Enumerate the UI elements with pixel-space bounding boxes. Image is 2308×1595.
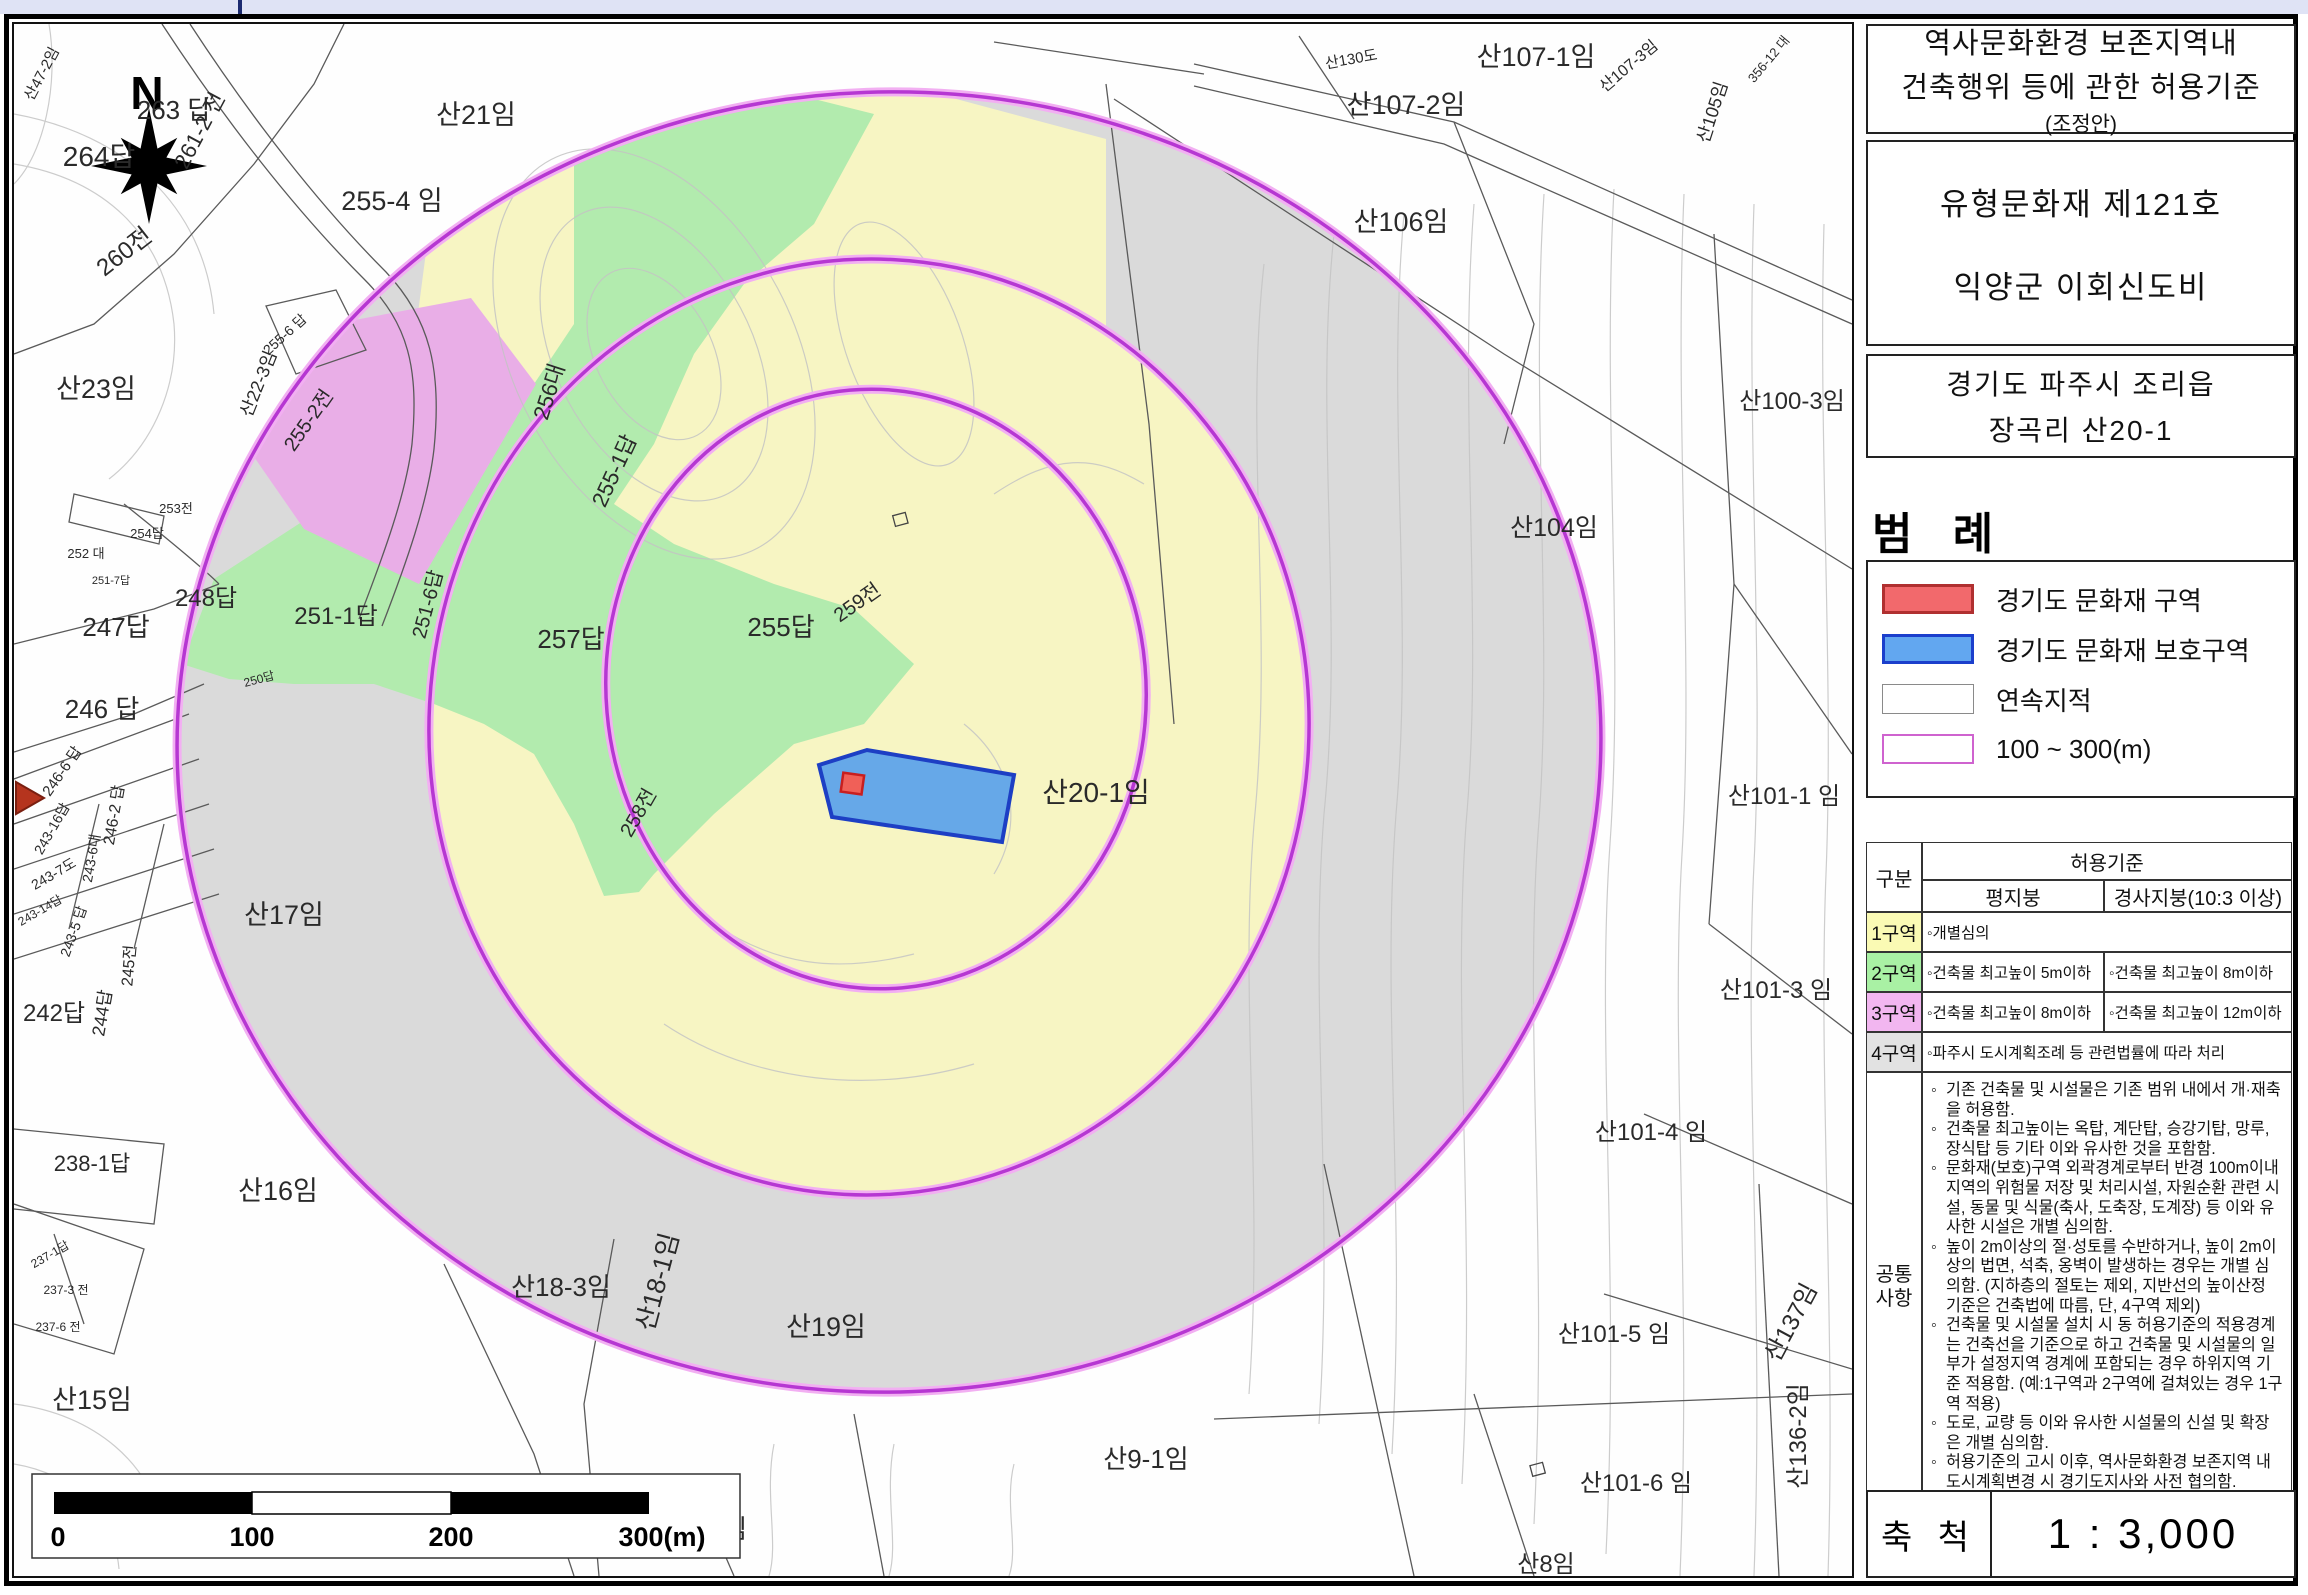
- parcel-label: 264답: [63, 141, 135, 172]
- parcel-label: 243-6대: [79, 833, 103, 884]
- heritage-box: 유형문화재 제121호 익양군 이회신도비: [1866, 140, 2296, 346]
- address-line2: 장곡리 산20-1: [1868, 409, 2294, 449]
- zone1-header: 1구역: [1866, 912, 1922, 952]
- parcel-label: 산101-3 임: [1720, 977, 1832, 1004]
- legend-box: 경기도 문화재 구역 경기도 문화재 보호구역 연속지적 100 ~ 300(m…: [1866, 560, 2296, 798]
- parcel-label: 산22-3임: [236, 348, 280, 420]
- title-box: 역사문화환경 보존지역내 건축행위 등에 관한 허용기준 (조정안): [1866, 24, 2296, 134]
- parcel-label: 산101-1 임: [1728, 783, 1840, 810]
- top-strip-divider: [238, 0, 242, 14]
- parcel-label: 257답: [537, 624, 604, 654]
- parcel-label: 산15임: [52, 1385, 132, 1415]
- parcel-label: 산17임: [244, 900, 324, 930]
- parcel-label: 246-6 답: [39, 743, 85, 799]
- parcel-label: 산106임: [1354, 207, 1449, 237]
- parcel-label: 산101-4 임: [1595, 1119, 1707, 1146]
- parcel-label: 244답: [88, 988, 116, 1037]
- parcel-label: 237-3 전: [43, 1283, 88, 1297]
- parcel-label: 산47-2임: [21, 44, 63, 103]
- doc-title-line1: 역사문화환경 보존지역내: [1868, 20, 2294, 62]
- legend-label: 연속지적: [1996, 681, 2092, 718]
- zone4-header: 4구역: [1866, 1032, 1922, 1072]
- parcel-label: 243-16답: [31, 800, 73, 857]
- map-sheet: N 263 답264답산47-2임260전261-2 전255-4 임산21임2…: [0, 0, 2308, 1595]
- parcel-label: 255-4 임: [341, 186, 442, 216]
- parcel-label: 246-2 답: [100, 784, 128, 847]
- scale-tick-300: 300(m): [618, 1522, 705, 1552]
- heritage-site-marker: [841, 773, 864, 795]
- zone3-flat-standard: ◦건축물 최고높이 8m이하: [1922, 992, 2104, 1032]
- parcel-label: 산19임: [786, 1312, 866, 1342]
- heritage-name: 익양군 이회신도비: [1868, 262, 2294, 307]
- parcel-label: 247답: [82, 612, 149, 642]
- common-provision-item: ◦문화재(보호)구역 외곽경계로부터 반경 100m이내 지역의 위험물 저장 …: [1931, 1159, 2283, 1237]
- legend-item-heritage-zone: 경기도 문화재 구역: [1882, 574, 2294, 624]
- scale-tick-200: 200: [428, 1522, 473, 1552]
- parcel-label: 산137임: [1760, 1279, 1823, 1366]
- heritage-designation: 유형문화재 제121호: [1868, 179, 2294, 224]
- common-header-line1: 공통: [1876, 1263, 1913, 1287]
- parcel-label: 산16임: [238, 1176, 318, 1206]
- parcel-label: 260전: [92, 222, 158, 282]
- common-provision-item: ◦건축물 및 시설물 설치 시 동 허용기준의 적용경계는 건축선을 기준으로 …: [1931, 1316, 2283, 1414]
- parcel-label: 산21임: [436, 100, 516, 130]
- common-provision-item: ◦건축물 최고높이는 옥탑, 계단탑, 승강기탑, 망루, 장식탑 등 기타 이…: [1931, 1120, 2283, 1159]
- parcel-label: 산105임: [1693, 79, 1732, 145]
- legend-swatch-white: [1882, 684, 1974, 714]
- parcel-label: 248답: [175, 585, 237, 612]
- parcel-label: 237-6 전: [35, 1320, 80, 1334]
- parcel-label: 산18-3임: [511, 1272, 611, 1302]
- parcel-label: 356-12 대: [1745, 33, 1793, 86]
- parcel-label: 산136-2임: [1785, 1383, 1812, 1489]
- parcel-label: 산107-2임: [1347, 90, 1466, 120]
- zone2-flat-standard: ◦건축물 최고높이 5m이하: [1922, 952, 2104, 992]
- parcel-label: 242답: [23, 1000, 85, 1027]
- parcel-label: 238-1답: [54, 1151, 131, 1176]
- legend-swatch-blue: [1882, 634, 1974, 664]
- parcel-label: 산8임: [1517, 1551, 1575, 1576]
- parcel-label: 산101-6 임: [1580, 1470, 1692, 1497]
- zone2-slope-standard: ◦건축물 최고높이 8m이하: [2104, 952, 2292, 992]
- scale-value: 1 : 3,000: [1992, 1492, 2294, 1576]
- scale-tick-0: 0: [50, 1522, 65, 1552]
- legend-item-buffer-rings: 100 ~ 300(m): [1882, 724, 2294, 774]
- address-line1: 경기도 파주시 조리읍: [1868, 363, 2294, 403]
- parcel-label: 산100-3임: [1739, 388, 1845, 415]
- legend-item-cadastral: 연속지적: [1882, 674, 2294, 724]
- parcel-label: 산104임: [1510, 514, 1598, 542]
- zone3-slope-standard: ◦건축물 최고높이 12m이하: [2104, 992, 2292, 1032]
- common-provisions-list: ◦기존 건축물 및 시설물은 기존 범위 내에서 개·재축을 허용함.◦건축물 …: [1922, 1072, 2292, 1501]
- common-provision-item: ◦도로, 교량 등 이와 유사한 시설물의 신설 및 확장은 개별 심의함.: [1931, 1414, 2283, 1453]
- edge-arrow-icon: [16, 782, 44, 814]
- legend-label: 경기도 문화재 구역: [1996, 581, 2202, 618]
- scale-label: 축 척: [1868, 1492, 1992, 1576]
- parcel-label: 243-7도: [28, 855, 78, 893]
- legend-title: 범 례: [1872, 498, 2007, 562]
- table-header-sloped-roof: 경사지붕(10:3 이상): [2104, 880, 2292, 912]
- table-header-flat-roof: 평지붕: [1922, 880, 2104, 912]
- parcel-label: 산107-3임: [1596, 37, 1661, 96]
- parcel-label: 253전: [159, 501, 193, 516]
- doc-title-note: (조정안): [1868, 108, 2294, 138]
- parcel-label: 산107-1임: [1477, 42, 1596, 72]
- common-provision-item: ◦높이 2m이상의 절·성토를 수반하거나, 높이 2m이상의 법면, 석축, …: [1931, 1238, 2283, 1316]
- legend-swatch-ring: [1882, 734, 1974, 764]
- zone3-header: 3구역: [1866, 992, 1922, 1032]
- legend-label: 경기도 문화재 보호구역: [1996, 631, 2250, 668]
- parcel-label: 산101-5 임: [1558, 1321, 1670, 1348]
- legend-label: 100 ~ 300(m): [1996, 734, 2151, 765]
- parcel-label: 산23임: [56, 374, 136, 404]
- table-header-zone: 구분: [1866, 842, 1922, 912]
- common-provisions-header: 공통 사항: [1866, 1072, 1922, 1501]
- parcel-label: 산130도: [1324, 47, 1379, 73]
- common-provision-item: ◦허용기준의 고시 이후, 역사문화환경 보존지역 내 도시계획변경 시 경기도…: [1931, 1453, 2283, 1492]
- scale-tick-100: 100: [229, 1522, 274, 1552]
- common-header-line2: 사항: [1876, 1287, 1913, 1311]
- window-top-strip: [0, 0, 2308, 14]
- doc-title-line2: 건축행위 등에 관한 허용기준: [1868, 64, 2294, 106]
- zone4-standard: ◦파주시 도시계획조례 등 관련법률에 따라 처리: [1922, 1032, 2292, 1072]
- parcel-label: 252 대: [67, 546, 104, 561]
- standards-table: 구분 허용기준 평지붕 경사지붕(10:3 이상) 1구역 ◦개별심의 2구역 …: [1866, 842, 2296, 1501]
- parcel-label: 255답: [747, 612, 814, 642]
- legend-item-protection-zone: 경기도 문화재 보호구역: [1882, 624, 2294, 674]
- parcel-label: 산9-1임: [1103, 1444, 1188, 1474]
- parcel-label: 251-7답: [92, 574, 130, 587]
- parcel-label: 243-5 답: [57, 904, 90, 959]
- parcel-label: 산20-1임: [1042, 777, 1150, 808]
- zone1-standard: ◦개별심의: [1922, 912, 2292, 952]
- parcel-label: 245전: [118, 944, 140, 987]
- zone2-header: 2구역: [1866, 952, 1922, 992]
- common-provision-item: ◦기존 건축물 및 시설물은 기존 범위 내에서 개·재축을 허용함.: [1931, 1081, 2283, 1120]
- map-canvas[interactable]: N 263 답264답산47-2임260전261-2 전255-4 임산21임2…: [12, 22, 1854, 1578]
- parcel-label: 246 답: [65, 694, 140, 724]
- map-scale-bar: 0 100 200 300(m): [32, 1474, 740, 1558]
- map-scale-box: 축 척 1 : 3,000: [1866, 1490, 2296, 1578]
- address-box: 경기도 파주시 조리읍 장곡리 산20-1: [1866, 354, 2296, 458]
- parcel-label: 254답: [130, 526, 164, 541]
- legend-swatch-red: [1882, 584, 1974, 614]
- parcel-label: 251-1답: [294, 603, 377, 630]
- table-header-standards: 허용기준: [1922, 842, 2292, 880]
